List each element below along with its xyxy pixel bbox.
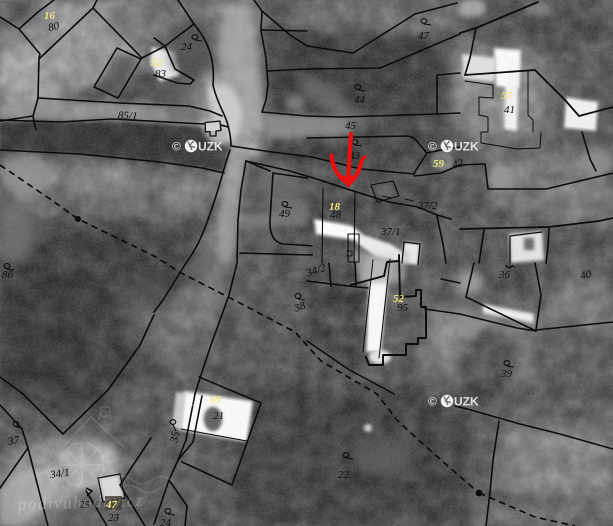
svg-text:69: 69 [210,394,222,406]
svg-text:16: 16 [44,10,56,22]
svg-text:©: © [172,140,181,154]
svg-text:39: 39 [500,368,513,380]
svg-text:UZK: UZK [198,140,223,154]
svg-text:57: 57 [501,90,513,102]
svg-text:36: 36 [498,269,511,281]
svg-text:44: 44 [354,94,366,106]
svg-text:52: 52 [393,293,405,305]
svg-text:c: c [191,397,196,409]
svg-text:UZK: UZK [454,140,479,154]
svg-text:83: 83 [155,68,167,80]
svg-text:59: 59 [433,158,445,170]
svg-text:24: 24 [181,41,193,53]
svg-text:23: 23 [108,512,120,524]
svg-text:86: 86 [2,269,14,281]
svg-text:37/1: 37/1 [380,226,401,238]
svg-text:18: 18 [329,201,341,213]
svg-text:45: 45 [345,120,357,132]
svg-text:UZK: UZK [454,395,479,409]
svg-text:47: 47 [418,30,430,42]
svg-text:52: 52 [151,57,163,69]
svg-text:85/1: 85/1 [118,109,138,122]
svg-text:37/2: 37/2 [417,200,438,212]
svg-text:22: 22 [338,469,350,481]
svg-text:41: 41 [504,104,515,116]
svg-text:49: 49 [279,208,291,220]
svg-text:©: © [428,395,437,409]
svg-text:21: 21 [213,410,224,422]
svg-text:©: © [428,140,437,154]
svg-text:24: 24 [160,517,172,526]
